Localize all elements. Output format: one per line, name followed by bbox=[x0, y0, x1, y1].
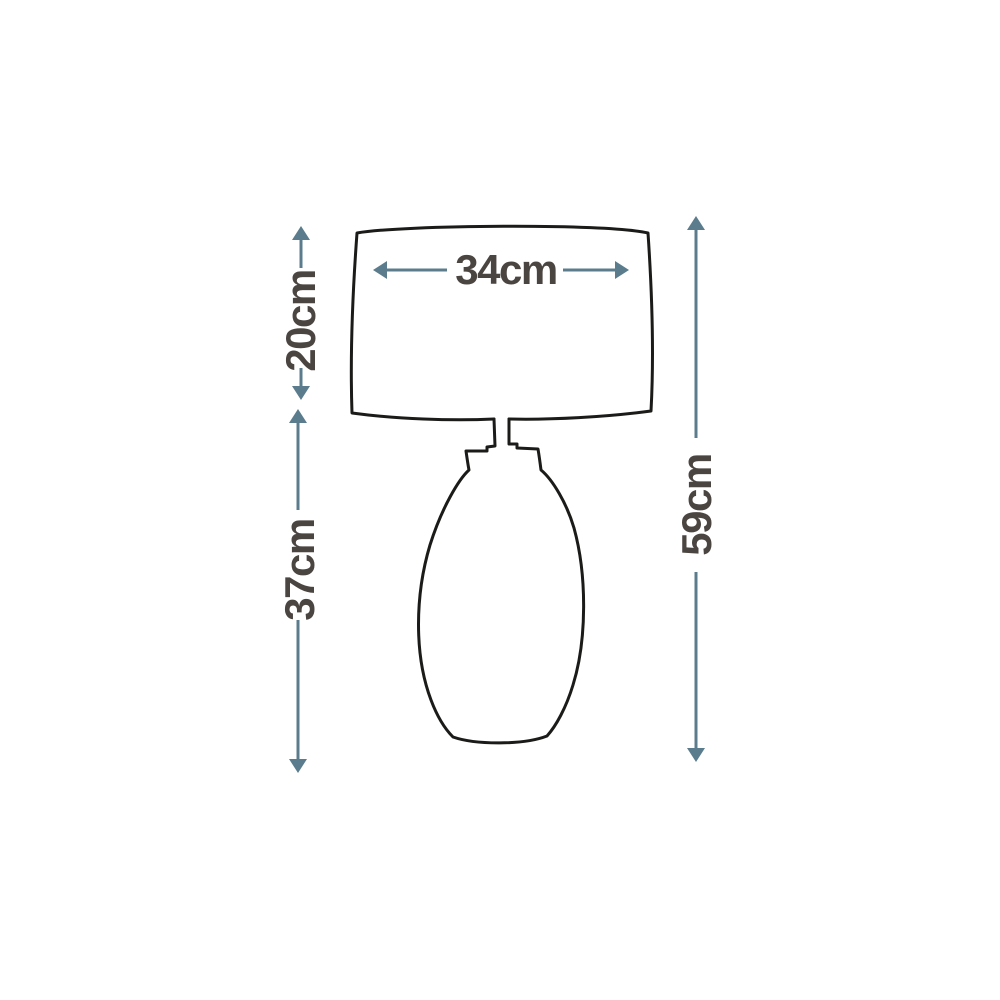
lamp-line-art bbox=[0, 0, 1000, 1000]
shade-height-label: 20cm bbox=[280, 270, 322, 371]
lamp-base-outline bbox=[419, 419, 584, 743]
total-height-label: 59cm bbox=[676, 454, 718, 555]
arrow-right-icon bbox=[615, 261, 629, 279]
lamp-dimension-diagram: 34cm 20cm 37cm 59cm bbox=[0, 0, 1000, 1000]
arrow-up-icon bbox=[289, 409, 307, 423]
arrow-down-icon bbox=[687, 748, 705, 762]
shade-width-label: 34cm bbox=[455, 249, 556, 291]
arrow-up-icon bbox=[687, 216, 705, 230]
arrow-down-icon bbox=[292, 386, 310, 400]
base-height-label: 37cm bbox=[279, 519, 321, 620]
arrow-down-icon bbox=[289, 759, 307, 773]
arrow-up-icon bbox=[292, 226, 310, 240]
arrow-left-icon bbox=[373, 261, 387, 279]
